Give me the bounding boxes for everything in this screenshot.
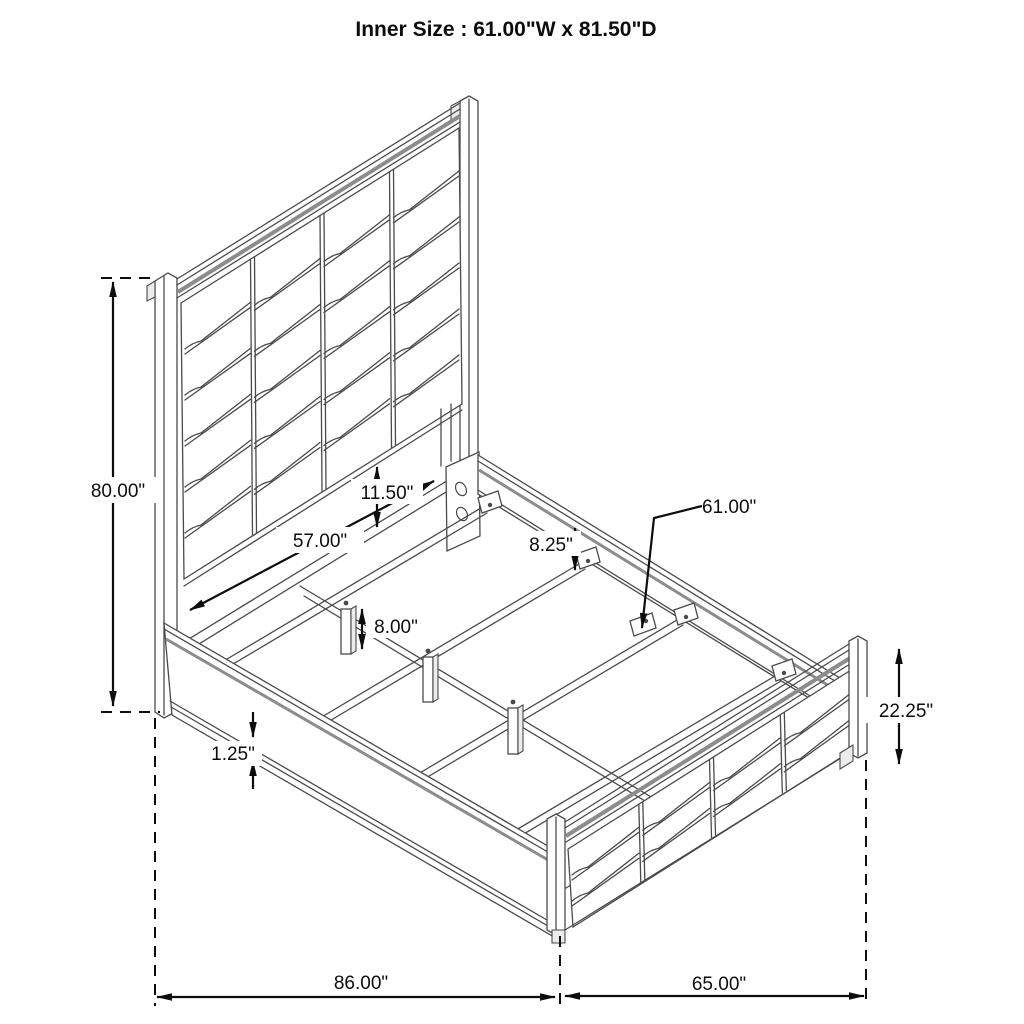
slat — [408, 603, 698, 788]
left-side-rail-bottom-edge — [170, 701, 559, 927]
center-support-leg — [341, 601, 356, 654]
bed-drawing — [147, 96, 867, 943]
dim-label-rail-to-slat: 8.25" — [529, 535, 573, 556]
rail-bracket-plate — [446, 452, 480, 551]
dim-label-headboard-height: 80.00" — [91, 481, 145, 502]
dim-label-overall-width: 65.00" — [692, 974, 746, 995]
center-support-leg — [423, 649, 438, 702]
center-support-leg — [508, 700, 523, 754]
dim-label-rail-lip: 1.25" — [211, 744, 255, 765]
bracket-screw — [644, 619, 648, 623]
footboard-left-leg — [552, 930, 565, 943]
page-title: Inner Size : 61.00"W x 81.50"D — [355, 18, 656, 41]
dim-label-center-leg-height: 8.00" — [374, 617, 418, 638]
diagram-canvas: 80.00" 57.00" 11.50" 8.25" 61.00" 8.00" … — [0, 0, 1024, 1024]
bed-dimension-diagram-page: { "title": "Inner Size : 61.00\"W x 81.5… — [0, 0, 1024, 1024]
headboard-left-post-cap — [147, 281, 155, 301]
dim-label-slat-length: 61.00" — [702, 497, 756, 518]
right-side-rail-cleat — [478, 490, 852, 722]
dim-label-overall-depth: 86.00" — [334, 973, 388, 994]
dim-label-panel-gap: 11.50" — [361, 483, 414, 504]
right-side-rail-trim — [479, 470, 855, 702]
headboard — [147, 96, 478, 718]
dim-label-headboard-width: 57.00" — [293, 531, 347, 552]
dim-label-footboard-height: 22.25" — [879, 701, 933, 722]
right-side-rail-edge — [478, 461, 856, 694]
